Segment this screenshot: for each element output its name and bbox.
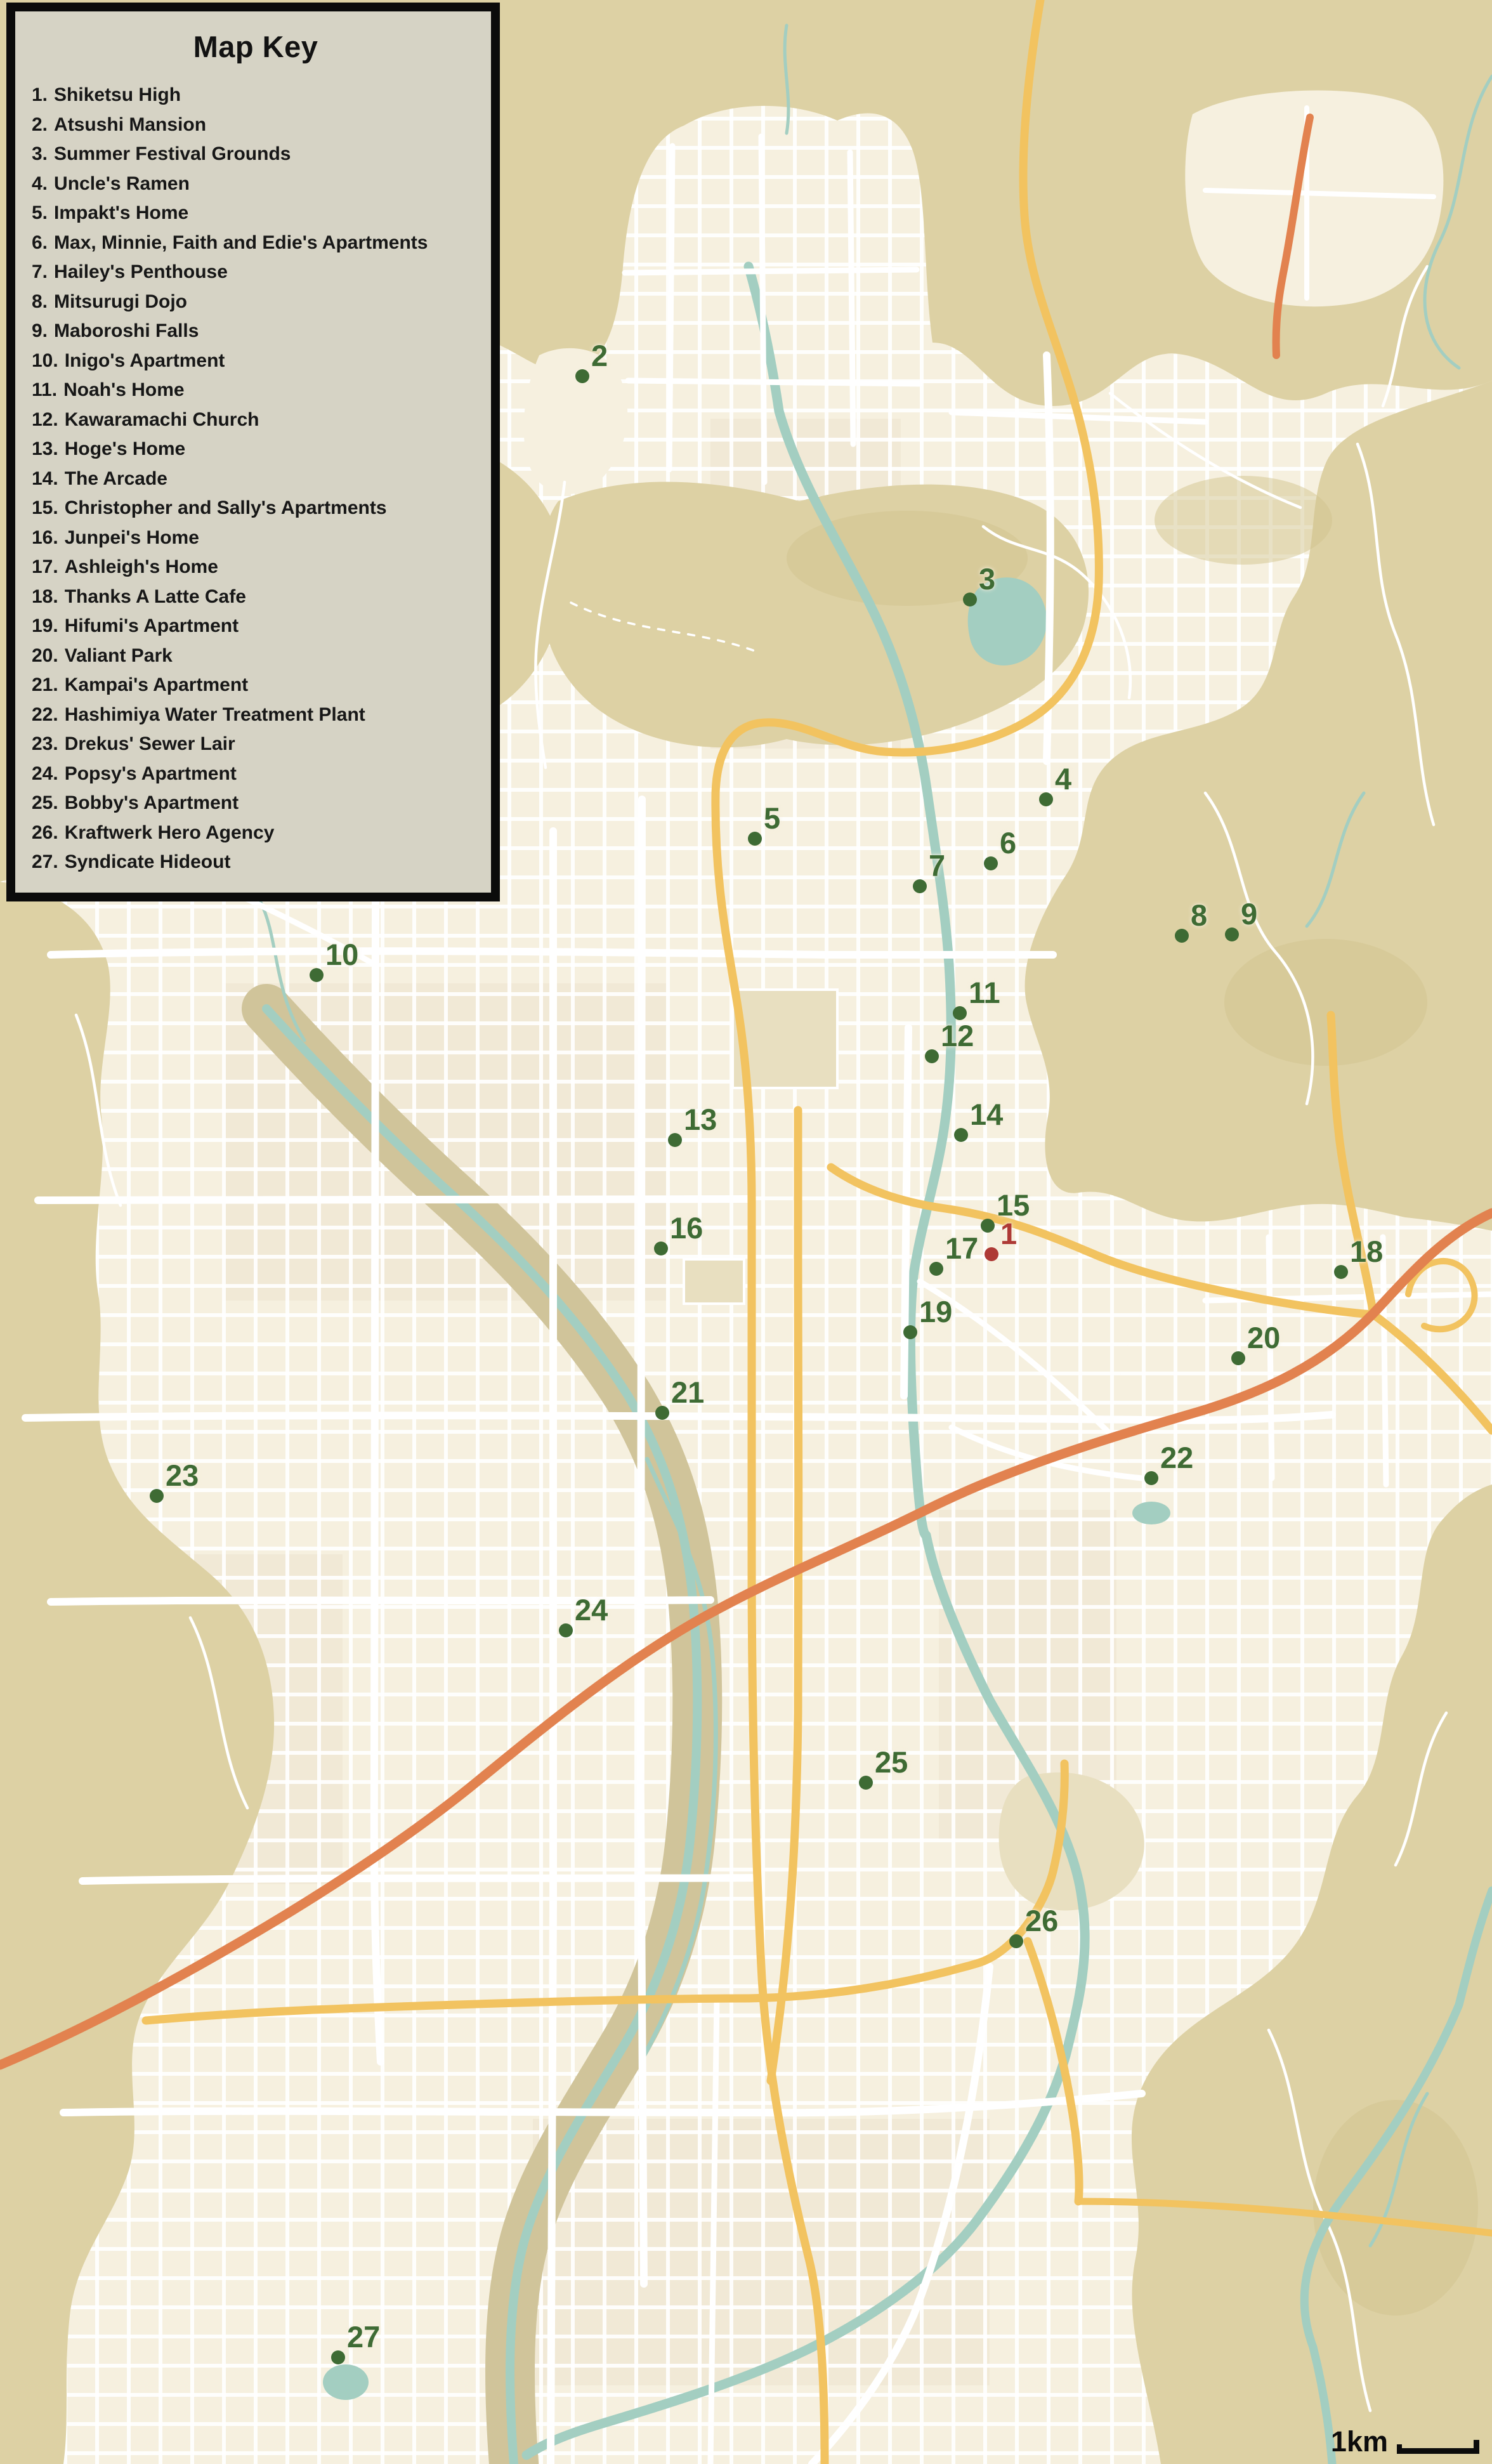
marker-number: 14 <box>970 1099 1003 1129</box>
legend-item-label: Drekus' Sewer Lair <box>65 733 235 754</box>
marker-number: 19 <box>919 1297 952 1327</box>
legend-item-label: Max, Minnie, Faith and Edie's Apartments <box>54 232 428 253</box>
legend-item-number: 27. <box>32 851 58 872</box>
legend-item-label: Shiketsu High <box>54 84 181 105</box>
legend-item: 5.Impakt's Home <box>32 199 480 228</box>
marker-dot <box>150 1489 164 1503</box>
legend-item-label: Hashimiya Water Treatment Plant <box>65 704 365 725</box>
legend-item: 19.Hifumi's Apartment <box>32 612 480 641</box>
marker-dot <box>984 856 998 870</box>
legend-item-number: 9. <box>32 320 48 341</box>
marker-number: 26 <box>1025 1906 1058 1936</box>
scale-bar: 1km <box>1331 2430 1479 2454</box>
scale-label: 1km <box>1331 2430 1388 2454</box>
legend-item-number: 20. <box>32 645 58 666</box>
legend-item-number: 22. <box>32 704 58 725</box>
legend-item: 23.Drekus' Sewer Lair <box>32 730 480 759</box>
legend-item-label: Atsushi Mansion <box>54 114 206 135</box>
legend-item: 2.Atsushi Mansion <box>32 110 480 140</box>
marker-dot <box>903 1325 917 1339</box>
legend-item: 26.Kraftwerk Hero Agency <box>32 818 480 848</box>
marker-number: 27 <box>347 2322 380 2352</box>
marker-dot <box>331 2350 345 2364</box>
legend-item-number: 17. <box>32 556 58 577</box>
legend-item: 1.Shiketsu High <box>32 81 480 110</box>
marker-dot <box>963 593 977 606</box>
marker-dot <box>1009 1934 1023 1948</box>
marker-dot <box>748 832 762 846</box>
legend-item: 14.The Arcade <box>32 464 480 494</box>
scale-line <box>1397 2440 1479 2454</box>
marker-number: 24 <box>575 1595 608 1625</box>
legend-item: 4.Uncle's Ramen <box>32 169 480 199</box>
legend-item-number: 13. <box>32 438 58 459</box>
marker-number: 11 <box>969 978 1000 1007</box>
legend-item-label: Mitsurugi Dojo <box>54 291 187 312</box>
marker-dot <box>1231 1351 1245 1365</box>
legend-item-number: 19. <box>32 615 58 636</box>
legend-item-label: Thanks A Latte Cafe <box>65 586 246 607</box>
legend-panel: Map Key 1.Shiketsu High2.Atsushi Mansion… <box>6 3 500 901</box>
marker-dot <box>1175 929 1189 943</box>
marker-number: 9 <box>1241 899 1257 929</box>
marker-dot <box>668 1133 682 1147</box>
legend-item-number: 12. <box>32 409 58 430</box>
legend-item-label: Kawaramachi Church <box>65 409 259 430</box>
marker-dot <box>981 1219 995 1233</box>
legend-item: 9.Maboroshi Falls <box>32 317 480 346</box>
legend-item-number: 5. <box>32 202 48 223</box>
legend-item: 21.Kampai's Apartment <box>32 671 480 700</box>
marker-dot <box>1039 792 1053 806</box>
marker-dot <box>929 1262 943 1276</box>
legend-item-number: 10. <box>32 350 58 371</box>
legend-item: 8.Mitsurugi Dojo <box>32 287 480 317</box>
legend-item-label: The Arcade <box>65 468 167 489</box>
marker-number: 15 <box>997 1190 1030 1220</box>
marker-number: 7 <box>929 851 945 881</box>
marker-number: 10 <box>325 940 358 969</box>
legend-item-number: 26. <box>32 822 58 843</box>
marker-dot <box>559 1623 573 1637</box>
marker-number: 18 <box>1350 1236 1383 1266</box>
legend-item-label: Summer Festival Grounds <box>54 143 291 164</box>
marker-number: 22 <box>1160 1443 1193 1472</box>
marker-number: 12 <box>941 1021 974 1051</box>
marker-dot <box>654 1242 668 1255</box>
legend-item: 12.Kawaramachi Church <box>32 405 480 435</box>
legend-item-number: 15. <box>32 497 58 518</box>
marker-dot <box>954 1128 968 1142</box>
legend-item-number: 24. <box>32 763 58 784</box>
legend-item-number: 11. <box>32 379 57 400</box>
legend-item: 11.Noah's Home <box>32 376 480 405</box>
legend-item-label: Kampai's Apartment <box>65 674 248 695</box>
legend-item-label: Christopher and Sally's Apartments <box>65 497 387 518</box>
marker-number: 4 <box>1055 764 1071 794</box>
legend-item-label: Hailey's Penthouse <box>54 261 228 282</box>
legend-item-number: 4. <box>32 173 48 194</box>
legend-item-label: Hoge's Home <box>65 438 186 459</box>
legend-item: 10.Inigo's Apartment <box>32 346 480 376</box>
legend-item-label: Noah's Home <box>63 379 185 400</box>
marker-dot <box>310 968 324 982</box>
legend-item-number: 21. <box>32 674 58 695</box>
legend-item: 16.Junpei's Home <box>32 523 480 553</box>
marker-dot <box>575 369 589 383</box>
legend-item-number: 2. <box>32 114 48 135</box>
legend-item: 3.Summer Festival Grounds <box>32 140 480 169</box>
marker-dot <box>655 1406 669 1420</box>
legend-item-number: 6. <box>32 232 48 253</box>
marker-number: 1 <box>1000 1219 1017 1248</box>
legend-item: 18.Thanks A Latte Cafe <box>32 582 480 612</box>
marker-dot <box>1225 927 1239 941</box>
legend-item-label: Uncle's Ramen <box>54 173 190 194</box>
legend-item-number: 18. <box>32 586 58 607</box>
legend-item-number: 25. <box>32 792 58 813</box>
marker-number: 17 <box>945 1233 978 1263</box>
legend-item-number: 8. <box>32 291 48 312</box>
legend-item-number: 1. <box>32 84 48 105</box>
legend-item-label: Kraftwerk Hero Agency <box>65 822 275 843</box>
marker-number: 3 <box>979 564 995 594</box>
legend-item-label: Maboroshi Falls <box>54 320 199 341</box>
legend-item-label: Junpei's Home <box>65 527 199 548</box>
legend-item-number: 16. <box>32 527 58 548</box>
legend-item: 25.Bobby's Apartment <box>32 789 480 818</box>
marker-dot <box>985 1247 998 1261</box>
marker-dot <box>925 1049 939 1063</box>
legend-item: 20.Valiant Park <box>32 641 480 671</box>
marker-number: 23 <box>166 1460 199 1490</box>
marker-number: 2 <box>591 341 608 370</box>
legend-title: Map Key <box>32 29 480 64</box>
legend-item-label: Popsy's Apartment <box>65 763 237 784</box>
legend-item: 17.Ashleigh's Home <box>32 553 480 582</box>
legend-item-number: 7. <box>32 261 48 282</box>
marker-dot <box>953 1006 967 1020</box>
marker-dot <box>1144 1471 1158 1485</box>
legend-item: 6.Max, Minnie, Faith and Edie's Apartmen… <box>32 228 480 258</box>
legend-item-number: 3. <box>32 143 48 164</box>
map-screen: 1234567891011121314151617181920212223242… <box>0 0 1492 2464</box>
marker-number: 16 <box>670 1213 703 1243</box>
legend-item: 7.Hailey's Penthouse <box>32 258 480 287</box>
legend-item-label: Syndicate Hideout <box>65 851 231 872</box>
legend-item: 15.Christopher and Sally's Apartments <box>32 494 480 523</box>
legend-item-number: 23. <box>32 733 58 754</box>
legend-item-number: 14. <box>32 468 58 489</box>
legend-item: 27.Syndicate Hideout <box>32 848 480 877</box>
legend-list: 1.Shiketsu High2.Atsushi Mansion3.Summer… <box>32 81 480 877</box>
marker-number: 21 <box>671 1377 704 1407</box>
marker-number: 20 <box>1247 1323 1280 1353</box>
marker-dot <box>1334 1265 1348 1279</box>
marker-dot <box>859 1776 873 1790</box>
marker-number: 5 <box>764 803 780 833</box>
marker-number: 25 <box>875 1747 908 1777</box>
marker-number: 6 <box>1000 828 1016 858</box>
legend-item-label: Ashleigh's Home <box>65 556 218 577</box>
marker-number: 8 <box>1191 900 1207 930</box>
marker-dot <box>913 879 927 893</box>
legend-item: 24.Popsy's Apartment <box>32 759 480 789</box>
legend-item-label: Hifumi's Apartment <box>65 615 239 636</box>
legend-item-label: Impakt's Home <box>54 202 188 223</box>
legend-item: 22.Hashimiya Water Treatment Plant <box>32 700 480 730</box>
legend-item-label: Bobby's Apartment <box>65 792 239 813</box>
marker-number: 13 <box>684 1104 717 1134</box>
legend-item: 13.Hoge's Home <box>32 435 480 464</box>
legend-item-label: Inigo's Apartment <box>65 350 225 371</box>
legend-item-label: Valiant Park <box>65 645 173 666</box>
